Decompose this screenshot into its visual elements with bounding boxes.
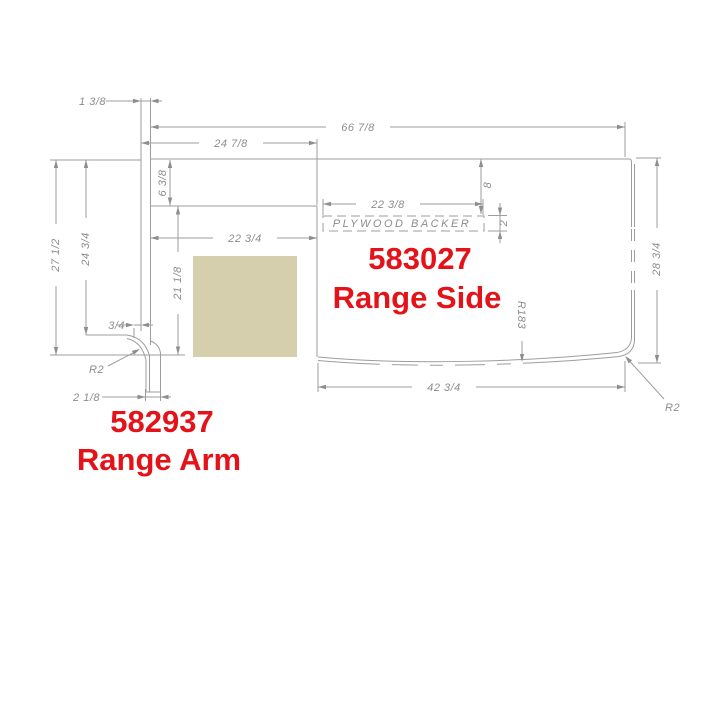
cad-drawing-page: 1 3/8 66 7/8 24 7/8 22 3/8 22 3/4 42 3/4…: [0, 0, 723, 723]
dim-front-curve-width: 42 3/4: [427, 382, 461, 394]
dim-front-curve-radius: R183: [515, 301, 527, 330]
dim-backer-height: 2: [498, 220, 510, 228]
dim-arm-foot-width: 2 1/8: [72, 392, 100, 404]
dim-top-strip-height: 6 3/8: [157, 169, 169, 196]
cad-drawing: 1 3/8 66 7/8 24 7/8 22 3/8 22 3/4 42 3/4…: [0, 0, 723, 723]
dim-corner-radius: R2: [665, 402, 680, 414]
range-arm-part-name: Range Arm: [77, 442, 241, 477]
dim-overall-width: 66 7/8: [341, 122, 375, 134]
dim-arm-total-height: 27 1/2: [50, 238, 62, 273]
dim-arm-foot-radius: R2: [89, 364, 104, 376]
dim-arm-lip: 3/4: [108, 320, 125, 332]
dim-arm-thickness: 1 3/8: [79, 96, 106, 108]
dim-lines: [56, 101, 664, 399]
dim-side-depth: 28 3/4: [651, 242, 663, 277]
side-edge-break-dashes: [632, 229, 635, 287]
dim-notch-height: 21 1/8: [172, 266, 184, 301]
material-swatch: [193, 256, 297, 357]
range-arm-part-number: 582937: [110, 404, 213, 439]
dim-backer-offset: 8: [482, 181, 494, 188]
range-side-part-number: 583027: [368, 241, 471, 276]
plywood-backer-label: PLYWOOD BACKER: [333, 218, 472, 230]
range-arm-outline: [50, 98, 185, 392]
dim-left-section-width: 24 7/8: [213, 138, 248, 150]
range-side-part-name: Range Side: [333, 280, 502, 315]
arm-foot-curves: [127, 335, 161, 392]
dim-arm-face-height: 24 3/4: [80, 232, 92, 267]
arm-face-lines: [50, 98, 185, 355]
dim-notch-width: 22 3/4: [227, 233, 262, 245]
dim-backer-width: 22 3/8: [370, 199, 405, 211]
